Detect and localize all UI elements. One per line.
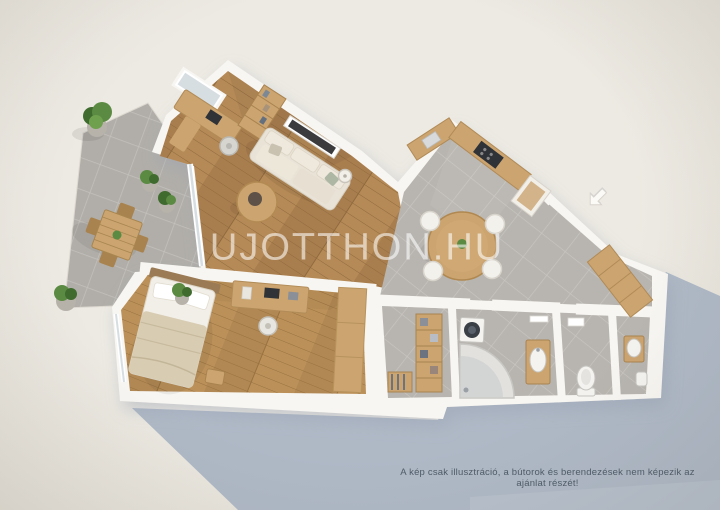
entrance-arrow-icon	[584, 184, 611, 211]
floorplan-screenshot: UJOTTHON.HU A kép csak illusztráció, a b…	[0, 0, 720, 510]
bedroom-chair	[259, 317, 277, 335]
office-chair	[220, 137, 238, 155]
disclaimer-caption: A kép csak illusztráció, a bútorok és be…	[385, 467, 710, 489]
washing-machine	[459, 317, 484, 342]
floor-lamp	[339, 170, 352, 183]
floorplan-svg	[0, 0, 720, 510]
bedroom-wardrobe	[333, 287, 366, 392]
nightstand	[205, 369, 225, 386]
potted-plant	[54, 285, 77, 311]
